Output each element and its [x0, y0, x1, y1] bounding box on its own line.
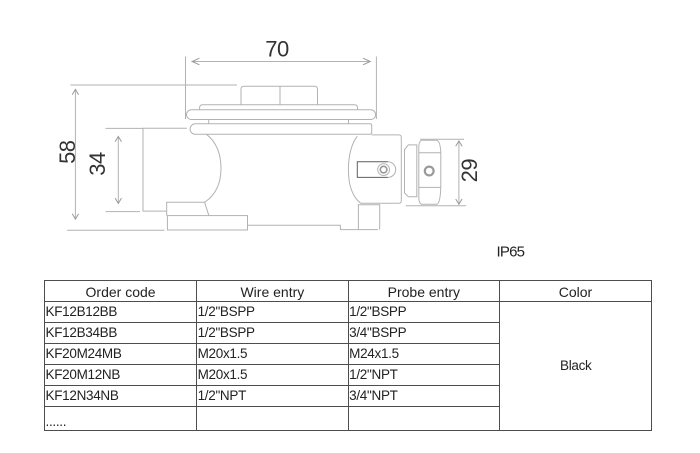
svg-text:58: 58	[55, 140, 80, 164]
svg-text:70: 70	[265, 37, 289, 62]
svg-text:34: 34	[85, 152, 110, 176]
svg-text:29: 29	[457, 159, 482, 183]
svg-text:IP65: IP65	[497, 244, 525, 261]
